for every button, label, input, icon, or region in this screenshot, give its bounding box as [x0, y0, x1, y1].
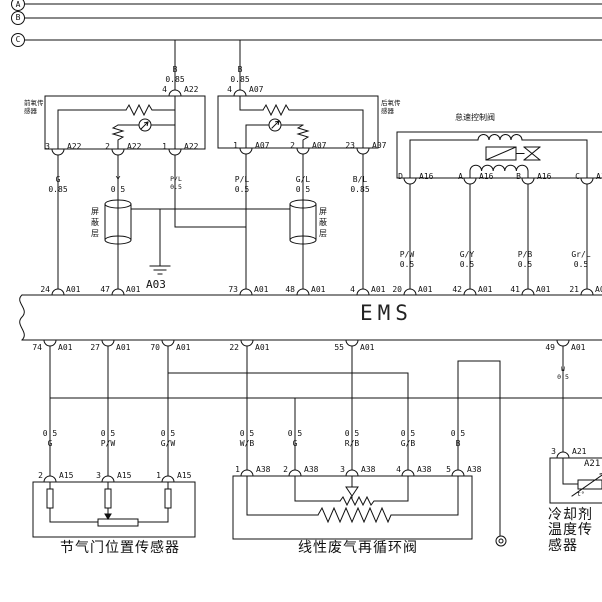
lwire-size: 0.5: [43, 430, 57, 439]
schematic-lineart: [0, 0, 602, 602]
ems-title: EMS: [360, 303, 413, 324]
ems-pin-conn: A01: [126, 286, 140, 295]
wire-gy-color: G/Y: [460, 251, 474, 260]
o2r-feed-color: B: [238, 66, 243, 75]
bus-a-marker: A: [16, 1, 21, 9]
egr-pin-conn: A38: [361, 466, 375, 475]
tps-pin1-conn: A15: [177, 472, 191, 481]
shield-left-label: 屏蔽层: [91, 206, 100, 239]
egr-pin-num: 2: [283, 466, 288, 475]
wire-w-size: 0.5: [557, 374, 569, 381]
ground-a03-label: A03: [146, 279, 166, 291]
lwire-color: P/W: [101, 440, 115, 449]
ems-pin-conn: A01: [571, 344, 585, 353]
wire-pl1-size: 0.5: [170, 184, 182, 191]
o2f-pin3-num: 3: [45, 143, 50, 152]
ems-pin-num: 21: [569, 286, 579, 295]
upper-harness-wires: [58, 154, 363, 289]
ems-pin-num: 49: [545, 344, 555, 353]
o2f-pin1-num: 1: [162, 143, 167, 152]
wire-gl-color: G/L: [296, 176, 310, 185]
ems-pin-num: 55: [334, 344, 344, 353]
egr-pin-num: 3: [340, 466, 345, 475]
ems-pin-num: 47: [100, 286, 110, 295]
iacv-symbol: [397, 132, 602, 289]
iacv-pinD-num: D: [398, 173, 403, 182]
ems-pin-conn: A01: [58, 344, 72, 353]
wire-gy-size: 0.5: [460, 261, 474, 270]
bus-b-marker: B: [16, 14, 21, 22]
lower-harness-wires: [50, 346, 602, 546]
o2r-pin23-conn: A07: [372, 142, 386, 151]
ems-pin-conn: A01: [66, 286, 80, 295]
iacv-pinB-conn: A16: [537, 173, 551, 182]
lwire-size: 0.5: [161, 430, 175, 439]
o2r-pin1-num: 1: [233, 142, 238, 151]
ems-pin-conn: A01: [116, 344, 130, 353]
ems-pin-num: 22: [229, 344, 239, 353]
o2r-pin2-conn: A07: [312, 142, 326, 151]
o2r-pin23-num: 23: [345, 142, 355, 151]
ect-thermo-label: t°: [577, 491, 585, 498]
lwire-color: B: [456, 440, 461, 449]
egr-pin-conn: A38: [256, 466, 270, 475]
iacv-pinC-conn: A16: [596, 173, 602, 182]
o2r-pin1-conn: A07: [255, 142, 269, 151]
ems-pin-num: 27: [90, 344, 100, 353]
egr-label: 线性废气再循环阀: [298, 541, 418, 556]
shield-right-label: 屏蔽层: [319, 206, 328, 239]
ems-pin-conn: A01: [254, 286, 268, 295]
tps-symbol: [33, 476, 195, 537]
ems-pin-num: 74: [32, 344, 42, 353]
ems-pin-num: 41: [510, 286, 520, 295]
ems-pin-num: 73: [228, 286, 238, 295]
wire-pw-size: 0.5: [400, 261, 414, 270]
ems-pin-num: 24: [40, 286, 50, 295]
ect-inner-label: A21: [584, 460, 600, 470]
lwire-size: 0.5: [101, 430, 115, 439]
o2r-pin4-num: 4: [227, 86, 232, 95]
bus-lines: [12, 0, 602, 90]
ect-label: 冷却剂温度传感器: [548, 508, 602, 554]
ems-pin-num: 20: [392, 286, 402, 295]
iacv-pinC-num: C: [575, 173, 580, 182]
o2r-feed-size: 0.85: [230, 76, 249, 85]
lwire-color: G: [48, 440, 53, 449]
o2f-label-line2: 感器: [24, 108, 37, 116]
tps-pin3-conn: A15: [117, 472, 131, 481]
wire-pl2-color: P/L: [235, 176, 249, 185]
lwire-color: W/B: [240, 440, 254, 449]
o2f-pin2-conn: A22: [127, 143, 141, 152]
bus-c-marker: C: [16, 36, 21, 44]
o2f-pin1-conn: A22: [184, 143, 198, 152]
tps-pin2-conn: A15: [59, 472, 73, 481]
wire-pw-color: P/W: [400, 251, 414, 260]
lwire-size: 0.5: [401, 430, 415, 439]
wire-g-size: 0.85: [48, 186, 67, 195]
ems-pin-conn: A01: [360, 344, 374, 353]
egr-pin-num: 5: [446, 466, 451, 475]
iacv-pinA-conn: A16: [479, 173, 493, 182]
ect-pin3-conn: A21: [572, 448, 586, 457]
wire-grl-size: 0.5: [574, 261, 588, 270]
iacv-pinD-conn: A16: [419, 173, 433, 182]
tps-label: 节气门位置传感器: [60, 541, 180, 556]
ems-pin-conn: A01: [536, 286, 550, 295]
lwire-color: R/B: [345, 440, 359, 449]
o2r-pin2-num: 2: [290, 142, 295, 151]
tps-pin3-num: 3: [96, 472, 101, 481]
iacv-pinB-num: B: [516, 173, 521, 182]
ground-a03-icon: [150, 209, 170, 274]
o2f-feed-color: B: [173, 66, 178, 75]
egr-pin-conn: A38: [304, 466, 318, 475]
ems-pin-conn: A01: [311, 286, 325, 295]
ems-pin-num: 4: [350, 286, 355, 295]
ems-pin-conn: A01: [478, 286, 492, 295]
o2f-pin2-num: 2: [105, 143, 110, 152]
o2r-label-line2: 感器: [381, 108, 394, 116]
ems-pin-conn: A01: [255, 344, 269, 353]
iacv-label: 怠速控制阀: [455, 114, 495, 123]
shield-symbols: [105, 200, 316, 244]
o2f-pin3-conn: A22: [67, 143, 81, 152]
egr-pin-num: 1: [235, 466, 240, 475]
lwire-color: G/W: [161, 440, 175, 449]
egr-symbol: [233, 470, 472, 539]
ems-pin-conn: A01: [176, 344, 190, 353]
o2f-pin4-num: 4: [162, 86, 167, 95]
ems-pin-conn: A01: [418, 286, 432, 295]
wiring-diagram: A B C B 0.85 B 0.85 4 A22 3 A22 2 A22 1 …: [0, 0, 602, 602]
o2f-feed-size: 0.85: [165, 76, 184, 85]
wire-bl-color: B/L: [353, 176, 367, 185]
lwire-color: G/B: [401, 440, 415, 449]
lwire-size: 0.5: [345, 430, 359, 439]
wire-pl2-size: 0.5: [235, 186, 249, 195]
o2r-pin4-conn: A07: [249, 86, 263, 95]
egr-pin-num: 4: [396, 466, 401, 475]
ems-pin-num: 48: [285, 286, 295, 295]
ems-box: [20, 289, 602, 346]
o2f-pin4-conn: A22: [184, 86, 198, 95]
egr-pin-conn: A38: [467, 466, 481, 475]
wire-bl-size: 0.85: [350, 186, 369, 195]
iacv-pinA-num: A: [458, 173, 463, 182]
wire-grl-color: Gr/L: [571, 251, 590, 260]
lwire-color: G: [293, 440, 298, 449]
ems-pin-conn: A01: [595, 286, 602, 295]
lwire-size: 0.5: [240, 430, 254, 439]
wire-y-size: 0.5: [111, 186, 125, 195]
wire-gl-size: 0.5: [296, 186, 310, 195]
egr-pin-conn: A38: [417, 466, 431, 475]
lwire-size: 0.5: [451, 430, 465, 439]
wire-y-color: Y: [116, 176, 121, 185]
tps-pin1-num: 1: [156, 472, 161, 481]
tps-pin2-num: 2: [38, 472, 43, 481]
ems-pin-num: 42: [452, 286, 462, 295]
wire-pb-color: P/B: [518, 251, 532, 260]
wire-pb-size: 0.5: [518, 261, 532, 270]
ems-pin-num: 70: [150, 344, 160, 353]
ems-pin-conn: A01: [371, 286, 385, 295]
ect-pin3-num: 3: [551, 448, 556, 457]
lwire-size: 0.5: [288, 430, 302, 439]
wire-g-color: G: [56, 176, 61, 185]
